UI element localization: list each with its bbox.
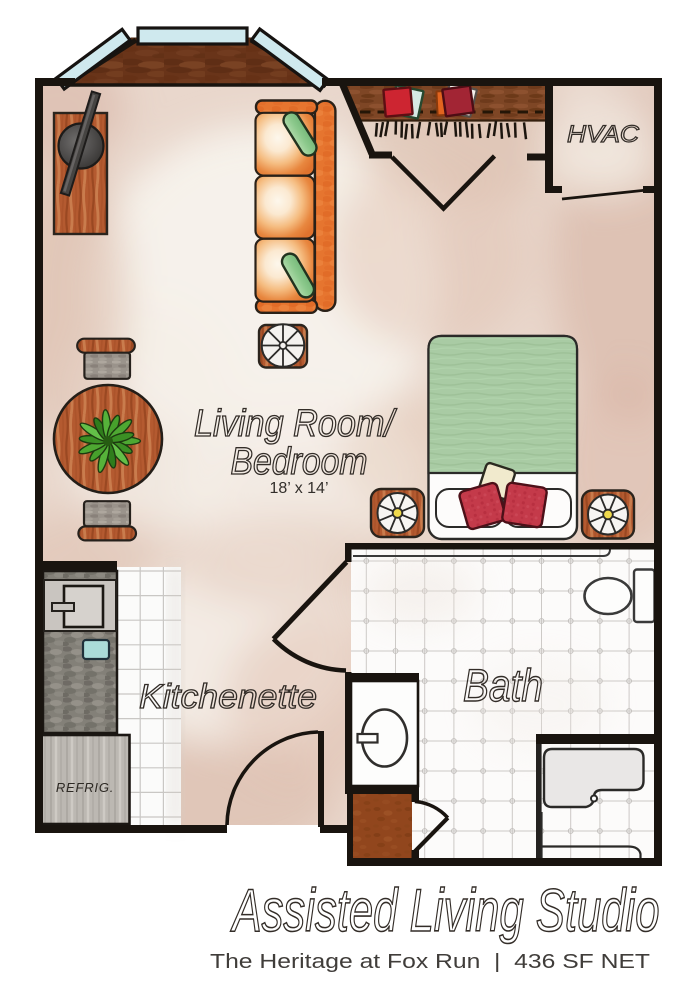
svg-text:The Heritage at Fox Run | 43: The Heritage at Fox Run | 436 SF NET bbox=[210, 951, 650, 973]
svg-text:Assisted Living Studio: Assisted Living Studio bbox=[230, 877, 659, 944]
svg-text:Bedroom: Bedroom bbox=[231, 441, 368, 483]
svg-text:REFRIG.: REFRIG. bbox=[56, 780, 114, 795]
svg-text:Bath: Bath bbox=[463, 660, 543, 711]
svg-text:HVAC: HVAC bbox=[567, 121, 640, 148]
svg-text:18’ x 14’: 18’ x 14’ bbox=[270, 480, 329, 497]
svg-text:Kitchenette: Kitchenette bbox=[139, 678, 317, 716]
svg-text:Living Room/: Living Room/ bbox=[194, 403, 397, 445]
